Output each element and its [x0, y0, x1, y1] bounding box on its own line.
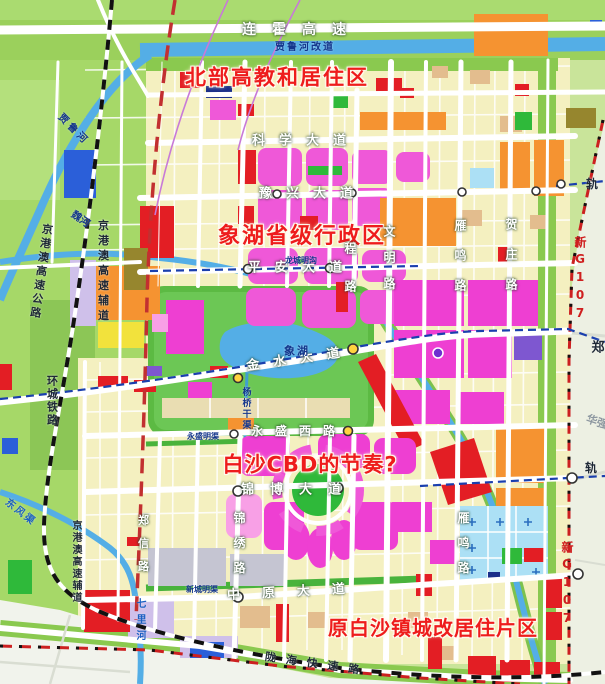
rail-label-zheng: 郑: [591, 342, 604, 355]
water-label-xiang-lake: 象湖: [284, 346, 310, 357]
road-label-zhengxin: 郑信路: [138, 515, 149, 584]
annotation-baisha-renewal: 原白沙镇城改居住片区: [328, 618, 538, 638]
map-graphic: [0, 0, 605, 684]
urban-planning-map: 北部高教和居住区 象湖省级行政区 白沙CBD的节奏? 原白沙镇城改居住片区 连霍…: [0, 0, 605, 684]
road-label-lianhuo-expressway: 连霍高速: [242, 23, 362, 37]
rail-label-metro-east-2: 轨: [585, 462, 597, 474]
road-label-yuxing-avenue: 豫兴大道: [259, 188, 367, 201]
water-label-xincheng-channel: 新城明渠: [186, 586, 218, 594]
water-label-qili-river: 七里河: [134, 598, 144, 646]
water-label-jialu-diversion: 贾鲁河改道: [275, 43, 335, 53]
annotation-north-district: 北部高教和居住区: [185, 68, 369, 89]
road-label-hezhuang: 贺庄路: [505, 218, 517, 308]
annotation-cbd: 白沙CBD的节奏?: [222, 455, 397, 476]
rail-label-jinggangao-frontage-s: 京港澳高速辅道: [70, 520, 80, 604]
water-label-longcheng-ditch: 龙城明沟: [285, 257, 317, 265]
road-label-yanming-south: 雁鸣路: [457, 512, 469, 587]
rail-label-jinggangao-frontage-n: 京港澳高速辅道: [98, 220, 109, 325]
water-label-yongsheng-channel: 永盛明渠: [187, 433, 219, 441]
annotation-admin-district: 象湖省级行政区: [218, 226, 386, 248]
road-label-new-g107-north: 新G107: [574, 236, 586, 324]
road-label-jinbo-avenue: 锦博大道: [241, 484, 357, 497]
road-label-cheng: 程路: [344, 242, 356, 318]
water-label-yangqiao-channel: 杨桥干渠: [241, 387, 250, 431]
rail-label-ring-railway: 环城铁路: [47, 375, 58, 427]
rail-label-metro-east-1: 轨: [586, 178, 598, 190]
road-label-wenming: 文明路: [383, 225, 395, 303]
road-label-yanming-north: 雁鸣路: [454, 219, 466, 309]
road-label-kexue-avenue: 科学大道: [252, 135, 360, 148]
road-label-yongsheng-west: 永盛西路: [251, 425, 347, 437]
road-label-jinxiu: 锦绣路: [233, 512, 245, 587]
road-label-new-g107-south: 新G107: [561, 541, 573, 629]
